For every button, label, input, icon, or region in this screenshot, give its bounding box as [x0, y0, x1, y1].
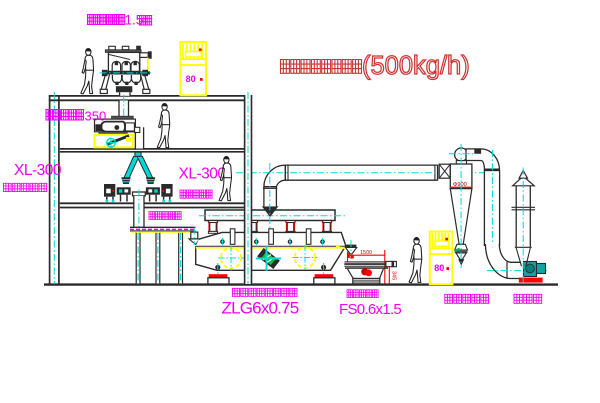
- svg-text:ZLG6x0.75: ZLG6x0.75: [222, 299, 299, 318]
- svg-text:345: 345: [391, 271, 397, 280]
- svg-text:350: 350: [85, 109, 107, 124]
- svg-text:80: 80: [434, 263, 444, 273]
- svg-text:(500kg/h): (500kg/h): [362, 52, 470, 80]
- svg-text:1500: 1500: [360, 250, 372, 256]
- svg-text:FS0.6x1.5: FS0.6x1.5: [339, 301, 401, 318]
- svg-text:80: 80: [186, 74, 196, 84]
- svg-text:XL-300: XL-300: [179, 166, 227, 183]
- svg-text:Φ900: Φ900: [453, 182, 467, 188]
- svg-text:XL-300: XL-300: [14, 162, 62, 179]
